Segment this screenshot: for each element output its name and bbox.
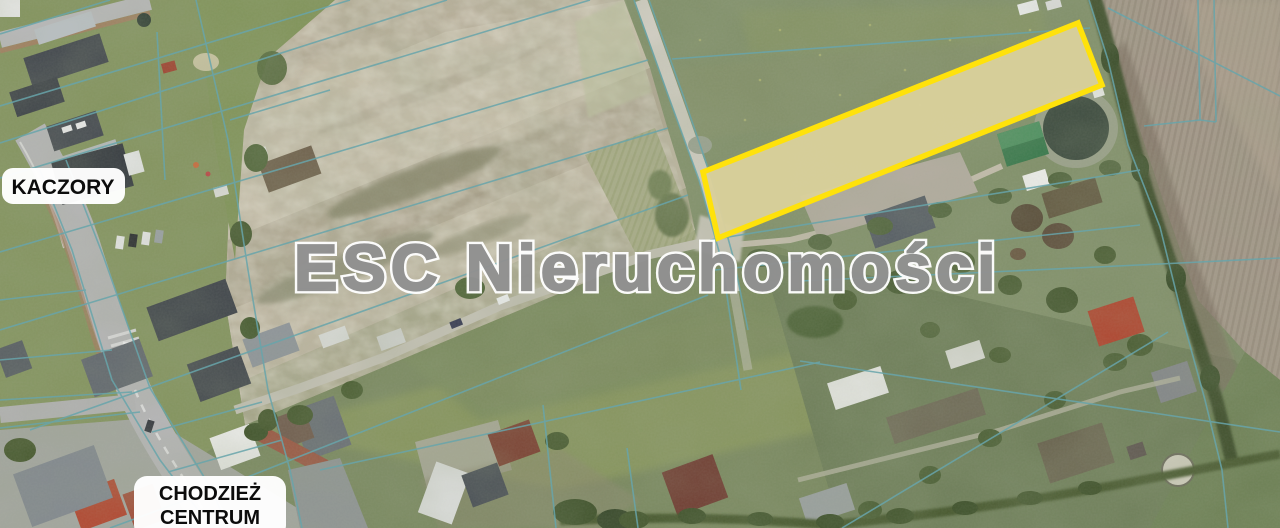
svg-text:KACZORY: KACZORY: [11, 176, 114, 199]
svg-text:CENTRUM: CENTRUM: [160, 507, 260, 528]
svg-text:CHODZIEŻ: CHODZIEŻ: [159, 482, 261, 505]
svg-text:ESC Nieruchomości: ESC Nieruchomości: [294, 231, 1000, 304]
